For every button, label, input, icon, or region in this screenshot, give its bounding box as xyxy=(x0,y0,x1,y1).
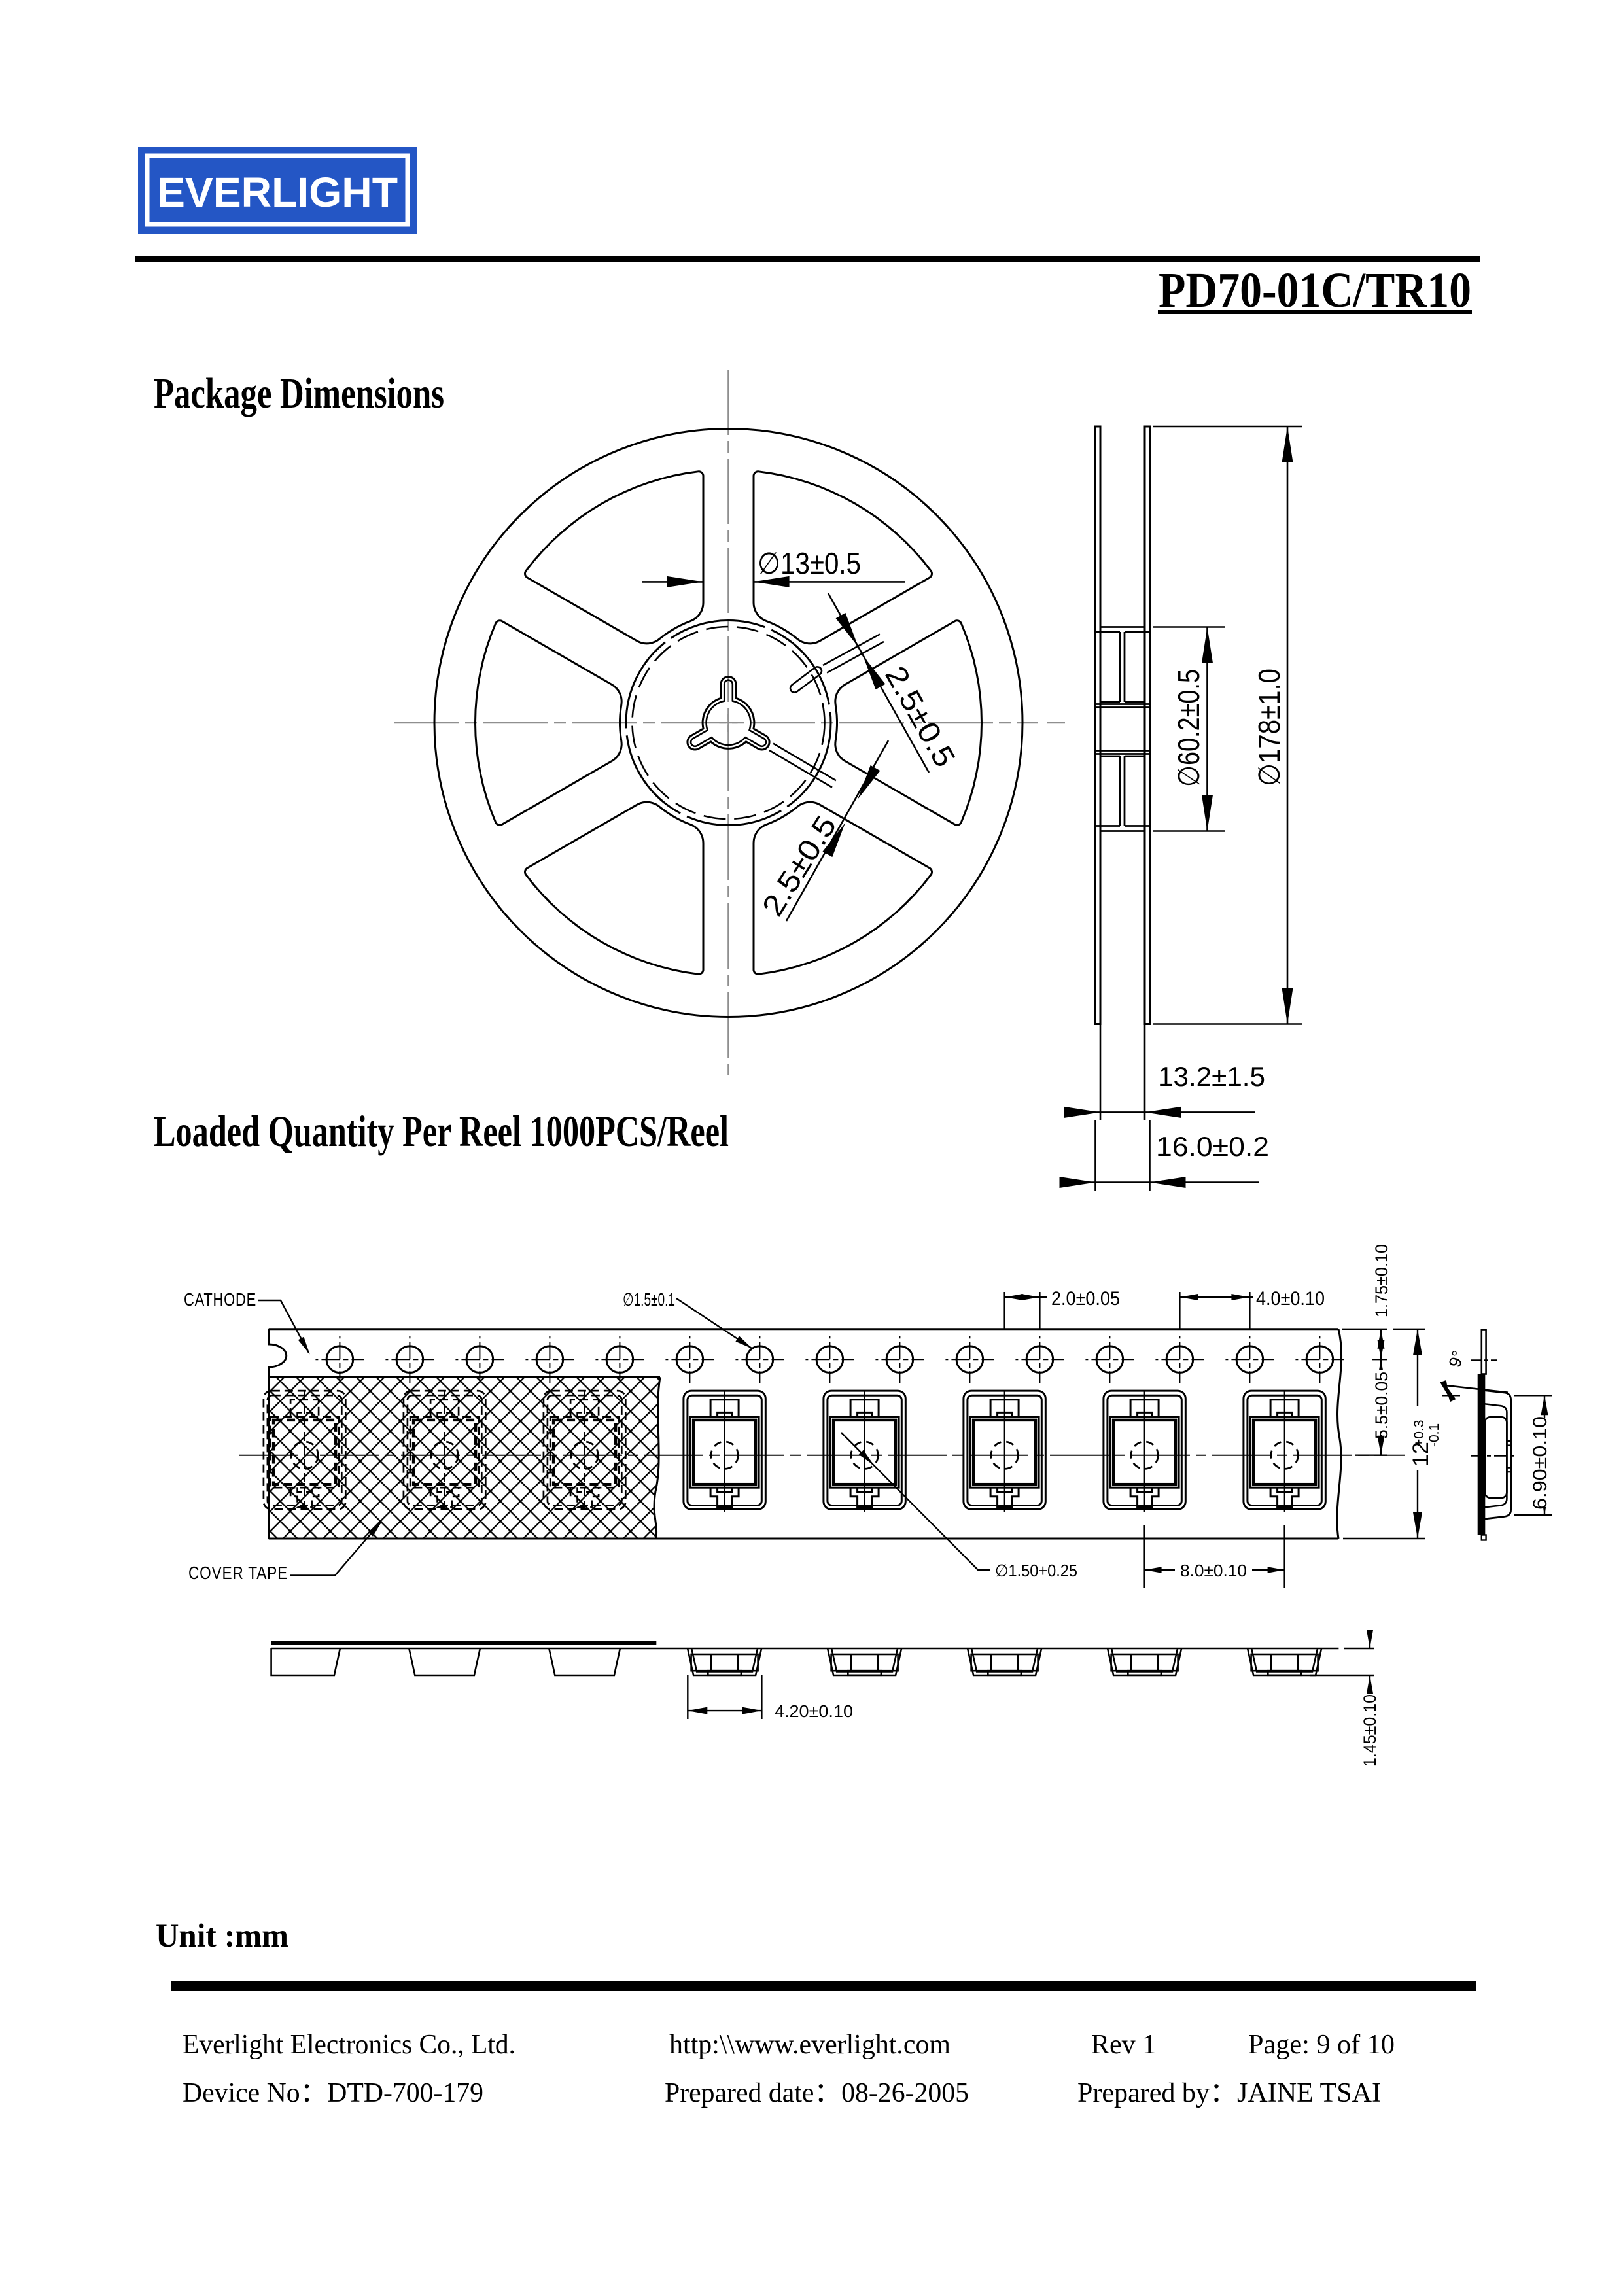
svg-text:∅13±0.5: ∅13±0.5 xyxy=(758,546,861,580)
svg-text:2.0±0.05: 2.0±0.05 xyxy=(1051,1288,1120,1310)
svg-text:Page: 9 of 10: Page: 9 of 10 xyxy=(1248,2030,1395,2060)
svg-text:∅1.5±0.1: ∅1.5±0.1 xyxy=(623,1289,675,1310)
svg-text:16.0±0.2: 16.0±0.2 xyxy=(1156,1131,1269,1162)
svg-text:http:\\www.everlight.com: http:\\www.everlight.com xyxy=(669,2030,951,2060)
svg-text:Unit :mm: Unit :mm xyxy=(156,1918,288,1955)
svg-text:2.5±0.5: 2.5±0.5 xyxy=(755,810,843,922)
svg-text:13.2±1.5: 13.2±1.5 xyxy=(1158,1061,1265,1092)
svg-text:PD70-01C/TR10: PD70-01C/TR10 xyxy=(1159,263,1471,318)
svg-text:∅60.2±0.5: ∅60.2±0.5 xyxy=(1172,669,1206,787)
svg-text:1.45±0.10: 1.45±0.10 xyxy=(1360,1694,1380,1767)
svg-text:Everlight Electronics Co., Ltd: Everlight Electronics Co., Ltd. xyxy=(183,2030,515,2060)
svg-text:8.0±0.10: 8.0±0.10 xyxy=(1180,1561,1247,1580)
svg-text:2.5±0.5: 2.5±0.5 xyxy=(879,660,962,773)
svg-text:4.20±0.10: 4.20±0.10 xyxy=(775,1701,853,1721)
svg-text:+0.3: +0.3 xyxy=(1412,1420,1427,1447)
svg-text:Prepared date：08-26-2005: Prepared date：08-26-2005 xyxy=(665,2078,969,2108)
svg-text:6.90±0.10: 6.90±0.10 xyxy=(1529,1416,1551,1510)
svg-text:EVERLIGHT: EVERLIGHT xyxy=(157,169,398,216)
svg-text:∅1.50+0.25: ∅1.50+0.25 xyxy=(995,1561,1077,1580)
svg-text:-0.1: -0.1 xyxy=(1427,1423,1442,1447)
svg-text:COVER TAPE: COVER TAPE xyxy=(188,1563,288,1583)
svg-text:Device No：DTD-700-179: Device No：DTD-700-179 xyxy=(183,2078,483,2108)
svg-text:Rev 1: Rev 1 xyxy=(1091,2030,1156,2060)
svg-text:Loaded Quantity Per Reel 1000P: Loaded Quantity Per Reel 1000PCS/Reel xyxy=(154,1106,729,1156)
svg-text:1.75±0.10: 1.75±0.10 xyxy=(1372,1244,1391,1317)
svg-text:Prepared by：JAINE TSAI: Prepared by：JAINE TSAI xyxy=(1077,2078,1381,2108)
svg-text:∅178±1.0: ∅178±1.0 xyxy=(1252,669,1286,786)
svg-text:5.5±0.05: 5.5±0.05 xyxy=(1372,1372,1391,1439)
svg-text:9°: 9° xyxy=(1444,1348,1468,1370)
svg-text:4.0±0.10: 4.0±0.10 xyxy=(1256,1288,1325,1310)
svg-text:CATHODE: CATHODE xyxy=(184,1289,256,1310)
svg-text:Package Dimensions: Package Dimensions xyxy=(154,370,444,417)
